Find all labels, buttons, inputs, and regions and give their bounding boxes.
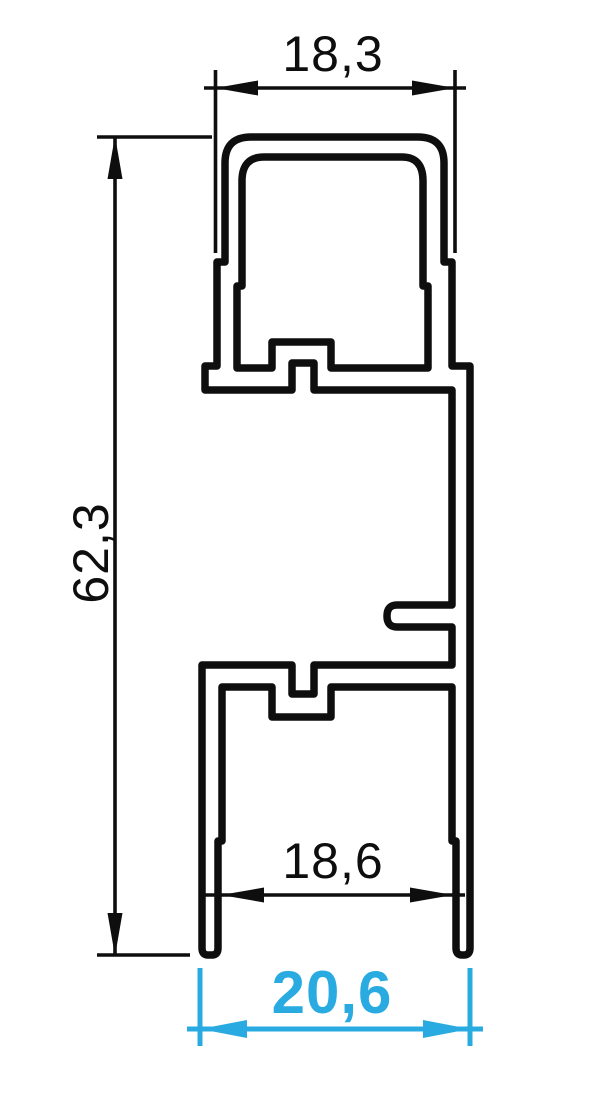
- dim-label-top-outer-width: 18,3: [282, 26, 383, 82]
- dim-label-overall-height: 62,3: [63, 502, 119, 603]
- dim-label-bottom-inner-width: 18,6: [282, 833, 383, 889]
- profile-technical-drawing: 18,3 62,3 18,6 20,6: [0, 0, 609, 1095]
- dim-label-bottom-overall-width: 20,6: [272, 959, 393, 1026]
- drawing-canvas: 18,3 62,3 18,6 20,6: [0, 0, 609, 1095]
